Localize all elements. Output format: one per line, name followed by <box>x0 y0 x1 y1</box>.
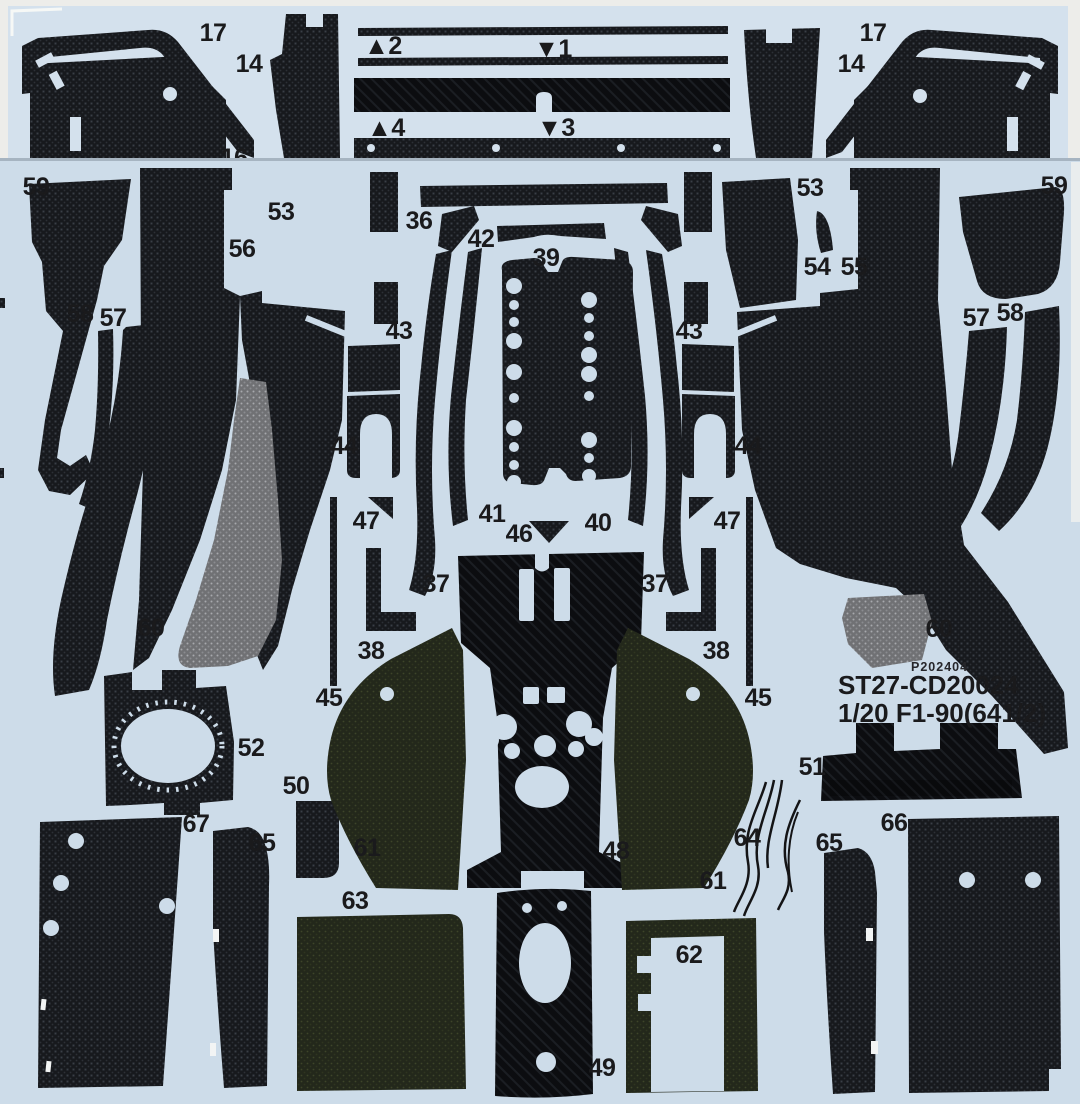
edge-mark <box>0 468 4 478</box>
part-number-label: 56 <box>229 235 256 263</box>
part-number-label: 59 <box>23 173 50 201</box>
part-number-label: 52 <box>238 734 265 762</box>
part-number-label: 60 <box>926 615 953 643</box>
decal-piece-43-left <box>348 344 400 392</box>
part-number-label: 44 <box>331 432 358 460</box>
part-number-label: 60 <box>138 614 165 642</box>
decal-strip-45-left <box>330 497 337 686</box>
part-number-label: 54 <box>804 253 831 281</box>
part-number-label: 58 <box>67 300 94 328</box>
part-number-label: 67 <box>183 810 210 838</box>
part-number-label: 58 <box>997 299 1024 327</box>
part-number-label: 66 <box>881 809 908 837</box>
part-number-label: 53 <box>797 174 824 202</box>
part-number-label: 65 <box>249 829 276 857</box>
part-number-label: 17 <box>200 19 227 47</box>
part-number-label: 48 <box>603 837 630 865</box>
part-number-label: 49 <box>589 1054 616 1082</box>
part-number-label: 14 <box>838 50 865 78</box>
part-number-label: 47 <box>353 507 380 535</box>
bottom-decal-sheet: P202404 ST27-CD20024 1/20 F1-90(641/2) 5… <box>0 158 1080 1104</box>
part-number-label: 53 <box>268 198 295 226</box>
part-number-label: 55 <box>841 253 868 281</box>
decal-piece-14-right <box>744 28 820 158</box>
part-number-label: 44 <box>735 432 762 460</box>
decal-blade-65-right <box>824 848 878 1094</box>
part-number-label: 45 <box>745 684 772 712</box>
part-number-label: 38 <box>703 637 730 665</box>
part-number-label: 39 <box>533 244 560 272</box>
decal-small-rect-right-upper <box>684 172 712 232</box>
part-number-label: 41 <box>479 500 506 528</box>
part-number-label: 50 <box>283 772 310 800</box>
sheet-edge-shadow <box>0 158 1080 161</box>
decal-panel-67 <box>38 817 182 1088</box>
decal-piece-50 <box>296 801 339 878</box>
part-number-label: 61 <box>354 834 381 862</box>
decal-small-rect-left-upper <box>370 172 398 232</box>
part-number-label: 14 <box>236 50 263 78</box>
part-number-label: 46 <box>506 520 533 548</box>
part-number-label: 17 <box>860 19 887 47</box>
decal-piece-43-right <box>682 344 734 392</box>
product-code: ST27-CD20024 <box>838 670 1019 700</box>
part-number-label: 63 <box>342 887 369 915</box>
part-number-label: 38 <box>358 637 385 665</box>
part-number-label: 62 <box>676 941 703 969</box>
part-number-label: ▼1 <box>534 35 572 63</box>
part-number-label: 57 <box>100 304 127 332</box>
part-number-label: 57 <box>963 304 990 332</box>
decal-bar-36 <box>420 183 668 207</box>
decal-bar-solid <box>354 78 730 112</box>
edge-mark <box>0 298 5 308</box>
decal-strip-45-right <box>746 497 753 686</box>
part-number-label: ▲2 <box>364 32 402 60</box>
part-number-label: 43 <box>386 317 413 345</box>
part-number-label: 47 <box>714 507 741 535</box>
scale-model-code: 1/20 F1-90(641/2) <box>838 698 1046 728</box>
part-number-label: 43 <box>676 317 703 345</box>
decal-piece-52 <box>104 670 234 815</box>
part-number-label: 65 <box>816 829 843 857</box>
part-number-label: 40 <box>585 509 612 537</box>
part-number-label: 59 <box>1041 172 1068 200</box>
part-number-label: ▼3 <box>537 114 575 142</box>
part-number-label: 61 <box>700 867 727 895</box>
part-number-label: 64 <box>734 824 761 852</box>
decal-piece-49 <box>495 889 593 1098</box>
part-number-label: 37 <box>642 570 669 598</box>
part-number-label: 42 <box>468 225 495 253</box>
decal-sheet-svg: 1714▲2▼1▲4▼3161417 <box>0 0 1080 1104</box>
decal-piece-63 <box>297 914 466 1091</box>
part-number-label: 45 <box>316 684 343 712</box>
part-number-label: 37 <box>423 570 450 598</box>
sheet-right-edge <box>1071 162 1080 522</box>
part-number-label: 36 <box>406 207 433 235</box>
decal-sheet-scan: 1714▲2▼1▲4▼3161417 <box>0 0 1080 1104</box>
decal-engine-panel-39 <box>502 257 633 489</box>
top-decal-sheet: 1714▲2▼1▲4▼3161417 <box>8 6 1068 172</box>
decal-panel-66 <box>908 816 1061 1093</box>
part-number-label: 51 <box>799 753 826 781</box>
decal-piece-44-right <box>682 394 735 478</box>
part-number-label: ▲4 <box>367 114 405 142</box>
